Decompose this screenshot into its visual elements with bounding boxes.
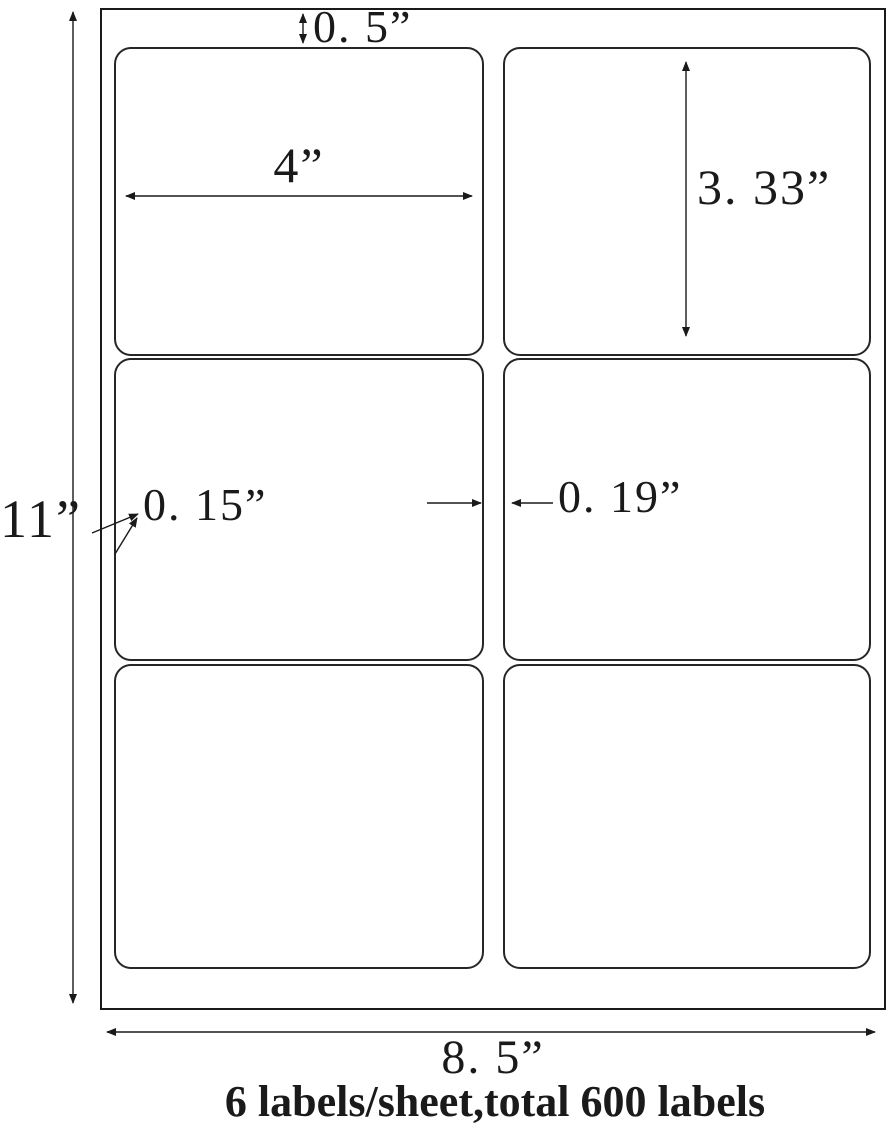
sheet-width-label: 8. 5” — [100, 1034, 886, 1082]
label-cell-r1c1 — [114, 47, 484, 356]
sheet-height-label: 11” — [0, 492, 78, 546]
label-cell-r3c1 — [114, 664, 484, 969]
label-sheet-diagram: 11” 0. 5” 4” 3. 33” 0. 15” 0. 19” 8. 5” … — [0, 0, 892, 1130]
label-cell-r3c2 — [503, 664, 871, 969]
column-gap-label: 0. 19” — [558, 474, 682, 520]
label-height-label: 3. 33” — [697, 162, 831, 212]
label-width-label: 4” — [124, 140, 474, 190]
top-margin-label: 0. 5” — [313, 4, 412, 50]
corner-radius-label: 0. 15” — [143, 482, 267, 528]
caption: 6 labels/sheet,total 600 labels — [100, 1080, 890, 1124]
